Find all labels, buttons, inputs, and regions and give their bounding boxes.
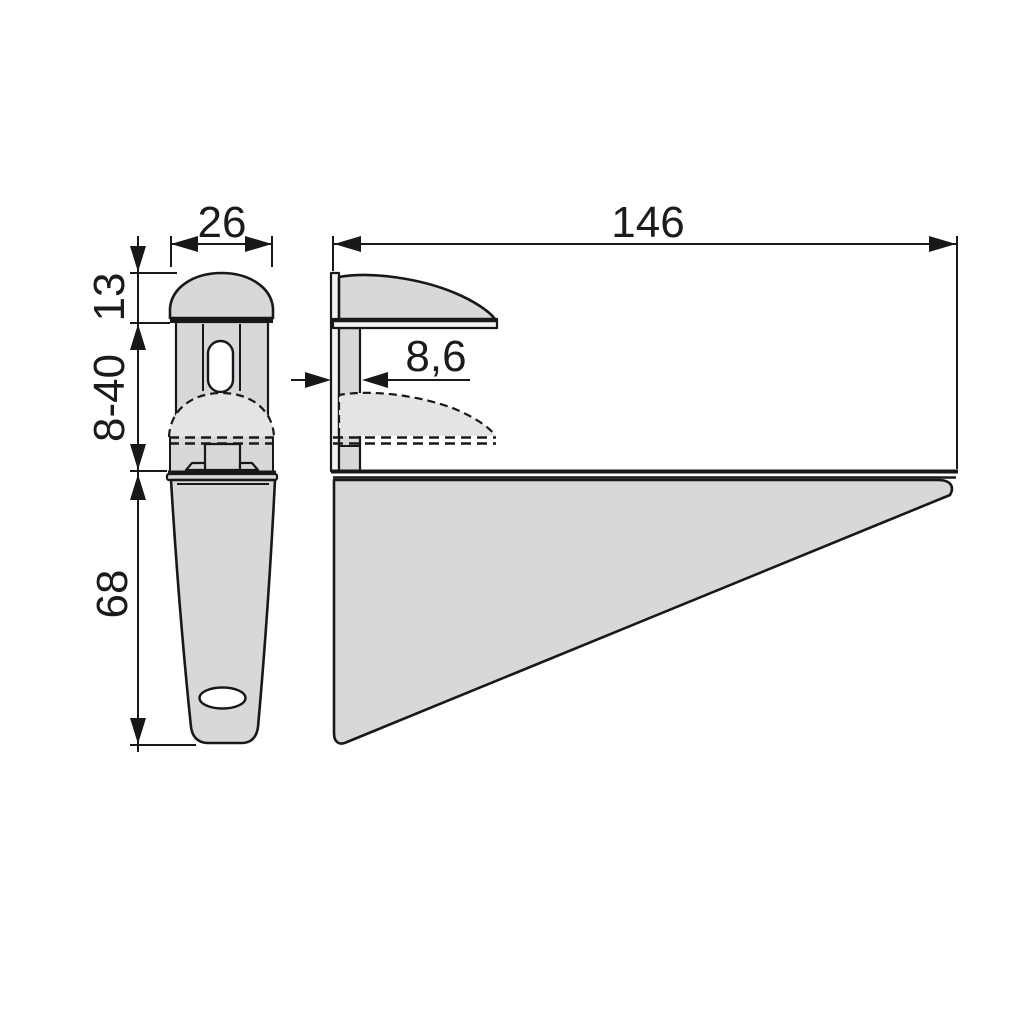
screw-slot — [208, 341, 233, 392]
dim-label-depth: 146 — [611, 198, 684, 247]
dim-label-leg-height: 68 — [88, 570, 137, 619]
shelf-bracket-drawing: 26 146 13 8-40 68 — [0, 0, 1024, 1024]
dim-label-cap-height: 13 — [85, 273, 134, 322]
technical-drawing-page: 26 146 13 8-40 68 — [0, 0, 1024, 1024]
dim-label-clamp-range: 8-40 — [85, 354, 134, 442]
leg-oval-hole — [200, 688, 246, 709]
latch-block-front — [205, 444, 240, 470]
dim-label-jaw-gap: 8,6 — [405, 332, 466, 381]
dim-label-cap-width: 26 — [198, 198, 247, 247]
